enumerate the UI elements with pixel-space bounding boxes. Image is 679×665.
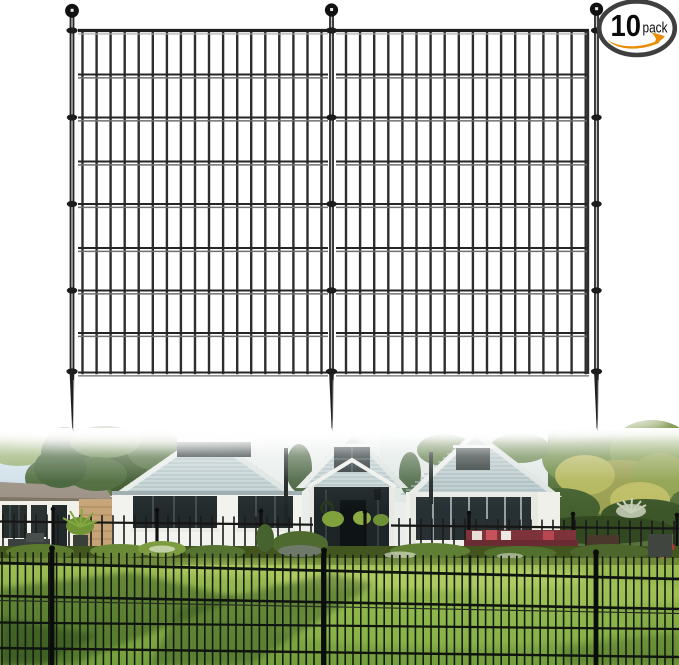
svg-text:10: 10 bbox=[611, 8, 642, 43]
